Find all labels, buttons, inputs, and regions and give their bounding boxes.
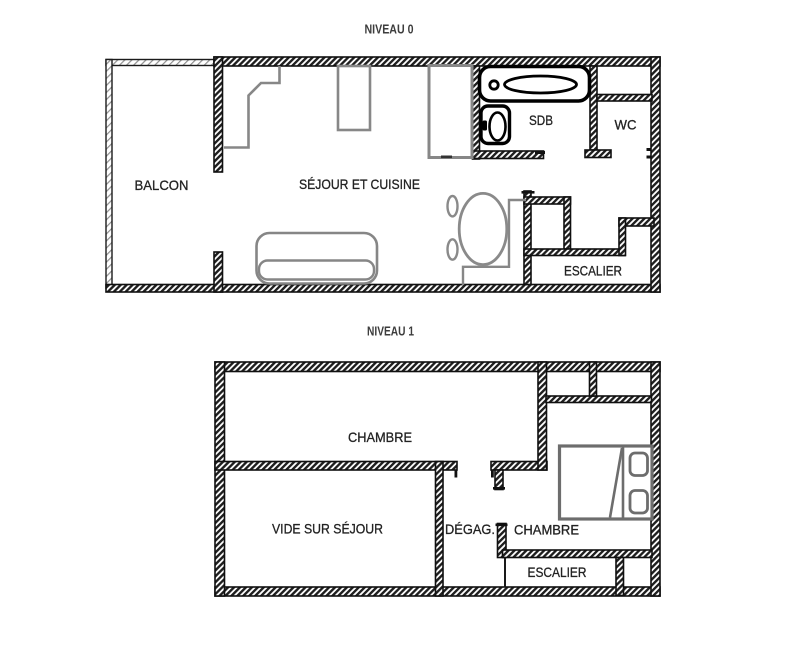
svg-text:ESCALIER: ESCALIER: [528, 564, 587, 580]
svg-text:WC: WC: [615, 117, 637, 133]
svg-text:SÉJOUR ET CUISINE: SÉJOUR ET CUISINE: [299, 176, 420, 192]
svg-text:CHAMBRE: CHAMBRE: [348, 429, 412, 445]
svg-text:NIVEAU 1: NIVEAU 1: [367, 325, 414, 339]
svg-text:SDB: SDB: [529, 112, 553, 128]
svg-text:VIDE SUR SÉJOUR: VIDE SUR SÉJOUR: [272, 521, 383, 537]
svg-text:DÉGAG.: DÉGAG.: [445, 521, 495, 537]
svg-text:ESCALIER: ESCALIER: [564, 263, 622, 279]
svg-text:CHAMBRE: CHAMBRE: [514, 522, 579, 538]
svg-text:NIVEAU 0: NIVEAU 0: [365, 23, 414, 37]
svg-text:BALCON: BALCON: [135, 177, 189, 193]
